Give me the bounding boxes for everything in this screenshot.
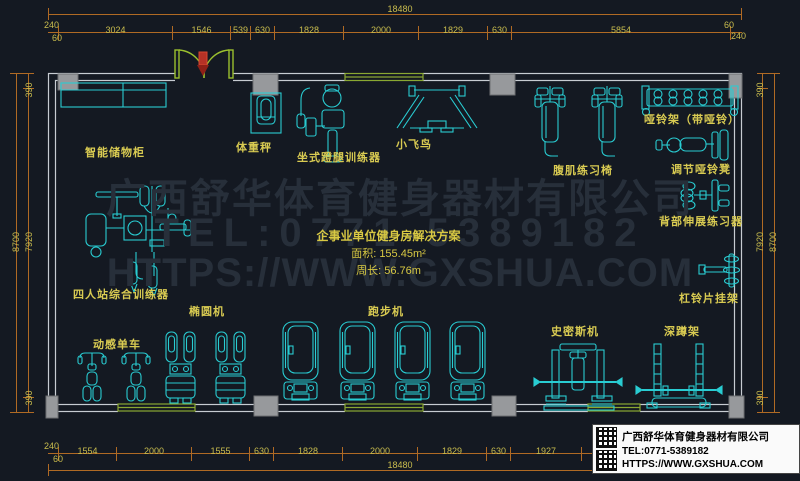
label-ab-chair: 腹肌练习椅	[553, 162, 613, 178]
ab-chair-icon	[592, 86, 622, 156]
company-info-text: 广西舒华体育健身器材有限公司 TEL:0771-5389182 HTTPS://…	[622, 429, 769, 470]
smith-machine-icon	[534, 344, 622, 410]
label-plate-rack: 杠铃片挂架	[679, 290, 739, 306]
label-back-extension: 背部伸展练习器	[659, 213, 743, 229]
label-elliptical: 椭圆机	[189, 303, 225, 319]
label-adj-bench: 调节哑铃凳	[671, 161, 731, 177]
label-squat-rack: 深蹲架	[664, 323, 700, 339]
company-tel: TEL:0771-5389182	[622, 446, 769, 457]
label-dumbbell-rack: 哑铃架（带哑铃）	[644, 111, 740, 127]
treadmill-icon	[340, 322, 375, 400]
qr-code-icon	[596, 427, 617, 448]
company-url: HTTPS://WWW.GXSHUA.COM	[622, 459, 769, 470]
fly-machine-icon	[397, 86, 477, 132]
window-bottom-1	[118, 403, 195, 413]
company-info-box: 广西舒华体育健身器材有限公司 TEL:0771-5389182 HTTPS://…	[592, 424, 800, 474]
adjustable-bench-icon	[656, 130, 728, 160]
label-fly-machine: 小飞鸟	[396, 136, 432, 152]
label-spin-bike: 动感单车	[93, 336, 141, 352]
spin-bike-icon	[122, 353, 150, 401]
spin-bike-icon	[78, 353, 106, 401]
label-four-station: 四人站综合训练器	[73, 286, 169, 302]
label-body-scale: 体重秤	[236, 139, 272, 155]
qr-column	[596, 427, 617, 471]
qr-code-icon	[596, 450, 617, 471]
company-name: 广西舒华体育健身器材有限公司	[622, 429, 769, 444]
treadmill-icon	[450, 322, 485, 400]
elliptical-icon	[216, 332, 245, 403]
cad-floorplan-canvas: { "colors":{"background":"#141922","equi…	[0, 0, 800, 481]
plan-area: 面积: 155.45m²	[306, 245, 471, 261]
elliptical-icon	[166, 332, 195, 403]
window-top	[345, 72, 423, 82]
label-smart-locker: 智能储物柜	[85, 144, 145, 160]
treadmill-icon	[395, 322, 430, 400]
plan-perimeter: 周长: 56.76m	[306, 262, 471, 278]
plan-title: 企事业单位健身房解决方案	[306, 227, 471, 244]
label-treadmill: 跑步机	[368, 303, 404, 319]
body-scale-icon	[251, 93, 281, 133]
squat-rack-icon	[636, 344, 722, 408]
treadmill-icon	[283, 322, 318, 400]
plan-summary: 企事业单位健身房解决方案 面积: 155.45m² 周长: 56.76m	[306, 227, 471, 278]
ab-chair-icon	[535, 86, 565, 156]
window-bottom-2	[345, 403, 423, 413]
label-smith-machine: 史密斯机	[551, 323, 599, 339]
label-leg-press: 坐式蹬腿训练器	[297, 149, 381, 165]
